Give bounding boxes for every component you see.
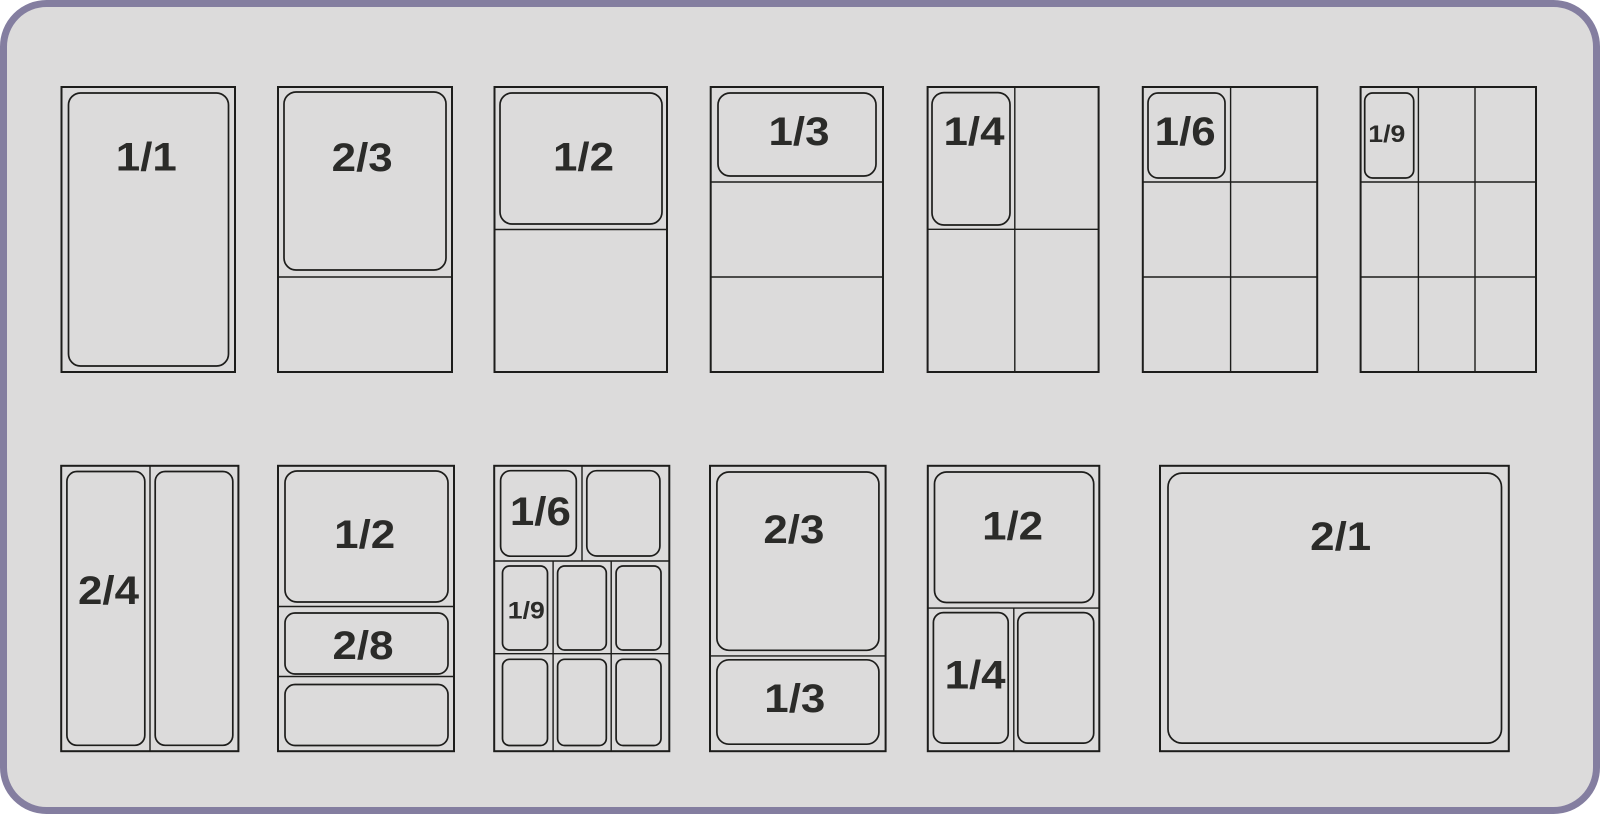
svg-text:2/1: 2/1 xyxy=(1310,515,1371,559)
svg-text:1/9: 1/9 xyxy=(1368,121,1405,148)
svg-text:1/3: 1/3 xyxy=(769,110,830,154)
svg-text:1/9: 1/9 xyxy=(508,597,545,624)
svg-text:1/6: 1/6 xyxy=(1155,110,1216,154)
svg-text:2/3: 2/3 xyxy=(763,508,824,552)
svg-text:1/2: 1/2 xyxy=(334,513,395,557)
svg-text:2/4: 2/4 xyxy=(78,569,140,613)
svg-text:1/1: 1/1 xyxy=(116,136,177,180)
svg-text:1/2: 1/2 xyxy=(982,504,1043,548)
svg-text:2/8: 2/8 xyxy=(333,624,394,668)
svg-text:1/3: 1/3 xyxy=(764,677,825,721)
svg-text:1/6: 1/6 xyxy=(510,490,571,534)
svg-text:1/4: 1/4 xyxy=(945,654,1007,698)
svg-text:1/4: 1/4 xyxy=(944,110,1006,154)
svg-text:1/2: 1/2 xyxy=(553,136,614,180)
svg-text:2/3: 2/3 xyxy=(332,136,393,180)
